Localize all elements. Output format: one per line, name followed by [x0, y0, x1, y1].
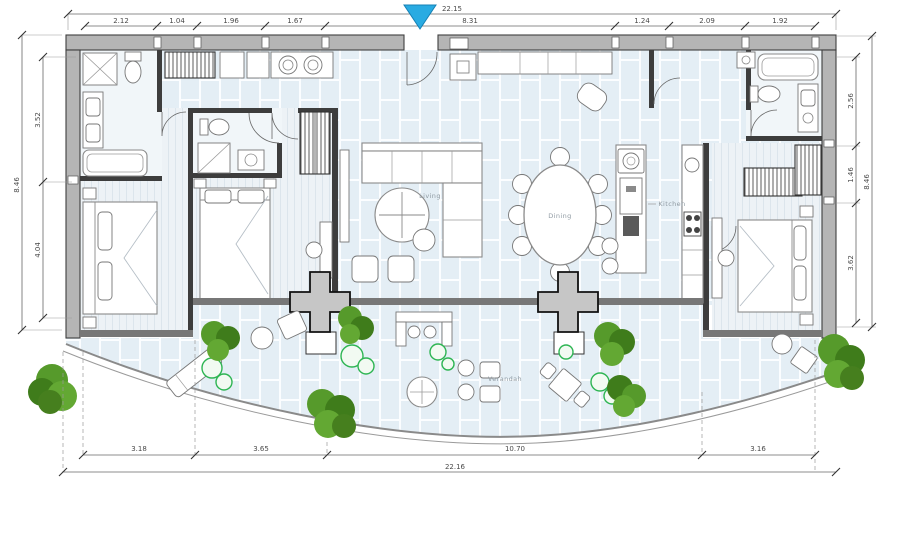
kitchen-bed3-wall	[703, 143, 709, 337]
bath2-right-wall	[277, 143, 282, 176]
bedroom-1	[83, 188, 157, 328]
nightstand-3a	[800, 206, 813, 217]
tv-console	[340, 150, 349, 242]
bath2-bottom-wall	[193, 173, 282, 178]
sink-1b	[86, 124, 100, 142]
vanity-2	[238, 150, 264, 170]
dining-label: Dining	[548, 212, 571, 220]
dim-label: 1.24	[634, 17, 650, 25]
toilet-1	[125, 61, 141, 83]
burner	[694, 227, 700, 233]
bath1-bottom-wall	[80, 176, 162, 181]
burner	[686, 215, 692, 221]
patio-table-round	[251, 327, 273, 349]
bed-3-pillow-b	[794, 266, 806, 300]
nightstand-3b	[800, 314, 813, 325]
wardrobe-3b	[795, 145, 821, 195]
bed-2-pillow-b	[238, 190, 264, 203]
dim-label: 2.12	[113, 17, 129, 25]
kitchen-wall-counter	[478, 52, 612, 74]
dim-label: 2.56	[847, 93, 855, 109]
kitchen-label: Kitchen	[658, 200, 685, 208]
utility-box	[737, 52, 755, 68]
bed1-bed2-divider	[188, 108, 193, 335]
bedroom-1-vestibule-floor	[162, 108, 188, 180]
wardrobe-1	[165, 52, 215, 78]
dim-label: 4.04	[34, 242, 42, 258]
bed-1-pillow-a	[98, 212, 112, 250]
shrub-icon	[559, 345, 573, 359]
left-wall	[66, 50, 80, 338]
dim-label: 3.18	[131, 445, 147, 453]
dim-left-overall-label: 8.46	[13, 177, 21, 193]
dim-right-overall-label: 8.46	[863, 174, 871, 190]
dim-label: 3.52	[34, 112, 42, 128]
armchair-a	[352, 256, 378, 282]
bed2-top-wall-a	[188, 108, 272, 113]
shrub-icon	[358, 358, 374, 374]
nightstand-1a	[83, 188, 96, 199]
wardrobe-3a	[744, 168, 802, 196]
left-wing-sliding-doors	[80, 330, 193, 337]
dim-label: 1.96	[223, 17, 239, 25]
shrub-icon	[591, 373, 609, 391]
island-dark-unit	[623, 216, 639, 236]
dim-label: 3.16	[750, 445, 766, 453]
armchair-b	[388, 256, 414, 282]
sink-1a	[86, 98, 100, 116]
burner	[686, 227, 692, 233]
floor-plan-page: 22.15 2.12 1.04 1.96 1.67 8.31 1.24 2.09…	[0, 0, 903, 542]
shrub-icon	[216, 374, 232, 390]
living-label: Living	[419, 192, 441, 200]
dim-label: 2.09	[699, 17, 715, 25]
toilet-3	[758, 86, 780, 102]
hall-cabinet-a	[220, 52, 244, 78]
toilet-3-tank	[750, 86, 758, 102]
toilet-2	[209, 119, 229, 135]
dim-label: 10.70	[505, 445, 525, 453]
bar-stool-b	[602, 258, 618, 274]
tree-icon	[818, 334, 865, 390]
washer-icon	[279, 56, 297, 74]
tree-icon	[28, 364, 77, 414]
dining-chair	[551, 148, 570, 167]
dim-top-overall-label: 22.15	[442, 5, 462, 13]
dim-label: 1.46	[847, 167, 855, 183]
shrub-icon	[430, 344, 446, 360]
bath3-bottom-wall	[746, 136, 822, 141]
sink-3	[801, 90, 815, 106]
entry-closet-wall	[649, 50, 654, 108]
dim-label: 3.62	[847, 255, 855, 271]
hall-cabinet-b	[247, 52, 269, 78]
toilet-2-tank	[200, 119, 208, 135]
bar-stool-a	[602, 238, 618, 254]
verandah-label: Verandah	[488, 375, 522, 383]
right-wall	[822, 50, 836, 338]
island-appliance	[620, 178, 642, 214]
stool-3	[718, 250, 734, 266]
bed2-living-divider	[332, 108, 338, 298]
toilet-1-tank	[125, 52, 141, 61]
center-sliding-doors	[193, 298, 703, 305]
side-table	[413, 229, 435, 251]
entrance-marker-icon	[404, 5, 436, 29]
bed-1-pillow-b	[98, 262, 112, 300]
nightstand-2b	[264, 179, 276, 188]
dim-label: 3.65	[253, 445, 269, 453]
floor-plan-drawing: 22.15 2.12 1.04 1.96 1.67 8.31 1.24 2.09…	[0, 0, 903, 542]
dim-label: 1.67	[287, 17, 303, 25]
appliance-handle	[626, 186, 636, 192]
dim-bottom-overall-label: 22.16	[445, 463, 466, 471]
entry-cabinet	[450, 54, 476, 80]
dim-label: 1.04	[169, 17, 185, 25]
right-wing-sliding-doors	[703, 330, 822, 337]
burner	[694, 215, 700, 221]
bed-2-pillow-a	[205, 190, 231, 203]
top-wall-right	[438, 35, 836, 50]
bed-3-pillow-a	[794, 226, 806, 260]
dryer-icon	[304, 56, 322, 74]
dim-label: 8.31	[462, 17, 478, 25]
stool-2	[306, 242, 322, 258]
nightstand-2a	[194, 179, 206, 188]
dim-label: 1.92	[772, 17, 788, 25]
patio-chair-round-right	[772, 334, 792, 354]
shrub-icon	[442, 358, 454, 370]
sofa-back	[362, 143, 482, 151]
bath1-right-wall	[157, 50, 162, 112]
bed-2	[200, 188, 270, 302]
bed-1	[83, 202, 157, 314]
top-wall-left	[66, 35, 404, 50]
nightstand-1b	[83, 317, 96, 328]
